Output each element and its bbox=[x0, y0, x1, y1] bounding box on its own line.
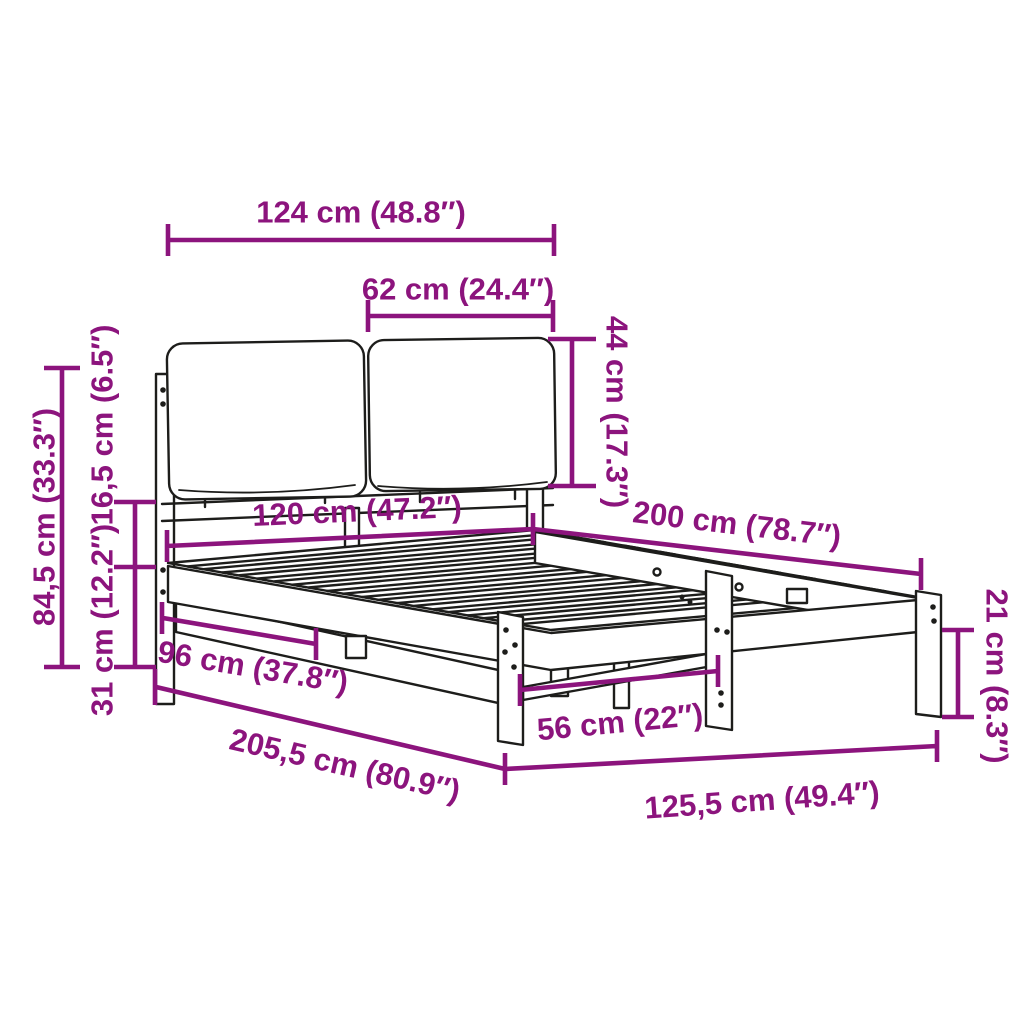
dim-leg-height: 21 cm (8.3″) bbox=[942, 588, 1015, 763]
dimension-diagram-canvas: 124 cm (48.8″) 62 cm (24.4″) 44 cm (17.3… bbox=[0, 0, 1024, 1024]
bed-frame-dimension-diagram: 124 cm (48.8″) 62 cm (24.4″) 44 cm (17.3… bbox=[0, 0, 1024, 1024]
dim-cushion-width: 62 cm (24.4″) bbox=[362, 272, 554, 333]
dim-center-leg-spacing-label: 56 cm (22″) bbox=[535, 697, 704, 748]
dim-headboard-height-label: 84,5 cm (33.3″) bbox=[27, 408, 62, 626]
rail-bracket bbox=[787, 589, 807, 603]
dim-leg-height-label: 21 cm (8.3″) bbox=[980, 588, 1015, 763]
dim-total-width-label: 125,5 cm (49.4″) bbox=[643, 774, 880, 825]
dim-cushion-width-label: 62 cm (24.4″) bbox=[362, 272, 554, 307]
slat-peg bbox=[736, 584, 743, 591]
foot-right-leg bbox=[916, 591, 941, 717]
dim-cushion-height: 44 cm (17.3″) bbox=[548, 316, 635, 508]
dim-headboard-width: 124 cm (48.8″) bbox=[168, 195, 554, 257]
dim-headboard-top-offset-and-frame-height: 16,5 cm (6.5″) 31 cm (12.2″) bbox=[85, 325, 157, 717]
headboard-cushion-right bbox=[368, 338, 556, 492]
dim-headboard-width-label: 124 cm (48.8″) bbox=[256, 195, 466, 230]
dim-headboard-height: 84,5 cm (33.3″) bbox=[27, 368, 81, 667]
headboard-cushion-left bbox=[167, 340, 367, 499]
head-rail-foot bbox=[346, 636, 366, 658]
slat-peg bbox=[654, 569, 661, 576]
dim-headboard-top-offset-label: 16,5 cm (6.5″) bbox=[85, 325, 120, 526]
dim-total-length-label: 205,5 cm (80.9″) bbox=[226, 721, 463, 808]
dim-frame-height-label: 31 cm (12.2″) bbox=[85, 524, 120, 716]
dim-cushion-height-label: 44 cm (17.3″) bbox=[600, 316, 635, 508]
